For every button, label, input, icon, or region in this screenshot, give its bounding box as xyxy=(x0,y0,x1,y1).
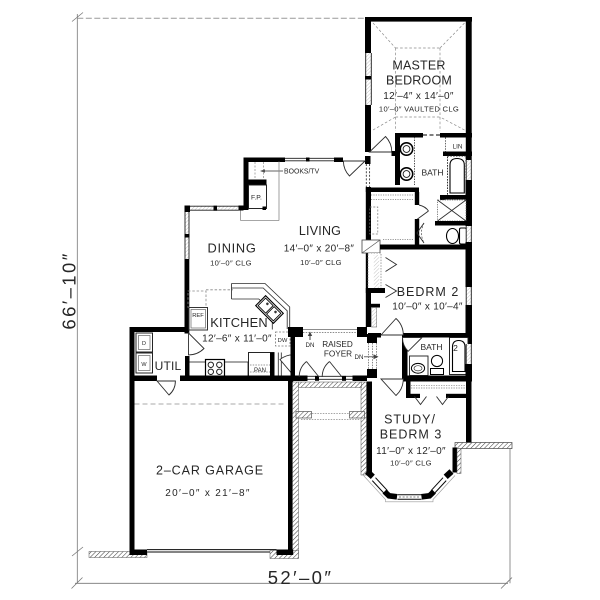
svg-text:DN: DN xyxy=(355,354,364,361)
svg-text:UTIL: UTIL xyxy=(155,359,182,373)
svg-text:10′–0″ x 10′–4″: 10′–0″ x 10′–4″ xyxy=(392,302,463,313)
svg-text:RAISED: RAISED xyxy=(322,340,353,349)
svg-text:10′–0″ CLG: 10′–0″ CLG xyxy=(210,259,252,268)
svg-text:52′–0″: 52′–0″ xyxy=(268,567,334,588)
svg-text:LIVING: LIVING xyxy=(299,224,341,238)
svg-text:10′–0″ CLG: 10′–0″ CLG xyxy=(300,258,342,267)
svg-text:12′–6″ x 11′–0″: 12′–6″ x 11′–0″ xyxy=(202,334,272,345)
svg-text:F.P.: F.P. xyxy=(251,195,262,202)
svg-text:DINING: DINING xyxy=(208,241,257,256)
svg-text:10′–0″ CLG: 10′–0″ CLG xyxy=(390,459,432,468)
svg-text:2: 2 xyxy=(453,343,458,353)
svg-text:KITCHEN: KITCHEN xyxy=(210,315,268,330)
svg-text:14′–0″ x 20′–8″: 14′–0″ x 20′–8″ xyxy=(284,244,355,255)
svg-text:REF: REF xyxy=(192,313,204,319)
svg-text:D: D xyxy=(142,341,146,347)
svg-text:10′–0″ VAULTED CLG: 10′–0″ VAULTED CLG xyxy=(379,105,459,114)
svg-text:BATH: BATH xyxy=(421,168,443,178)
svg-text:MASTER: MASTER xyxy=(392,59,445,73)
svg-text:BEDROOM: BEDROOM xyxy=(386,74,452,88)
svg-text:DW: DW xyxy=(278,338,288,344)
svg-text:20′–0″ x 21′–8″: 20′–0″ x 21′–8″ xyxy=(165,488,250,499)
svg-text:BEDRM 2: BEDRM 2 xyxy=(397,285,460,299)
svg-text:11′–0″ x 12′–0″: 11′–0″ x 12′–0″ xyxy=(376,446,446,457)
svg-text:LIN: LIN xyxy=(453,144,463,151)
svg-text:STUDY/: STUDY/ xyxy=(384,413,436,427)
svg-text:PAN: PAN xyxy=(254,368,266,374)
svg-text:BEDRM 3: BEDRM 3 xyxy=(380,428,443,442)
svg-text:12′–4″ x 14′–0″: 12′–4″ x 14′–0″ xyxy=(383,91,454,102)
svg-text:BOOKS/TV: BOOKS/TV xyxy=(284,168,320,175)
svg-text:66′–10″: 66′–10″ xyxy=(59,251,80,329)
svg-text:FOYER: FOYER xyxy=(324,349,352,358)
svg-text:BATH: BATH xyxy=(420,342,442,352)
svg-text:2–CAR GARAGE: 2–CAR GARAGE xyxy=(156,464,264,478)
svg-text:W: W xyxy=(141,362,147,368)
svg-text:DN: DN xyxy=(306,342,315,349)
